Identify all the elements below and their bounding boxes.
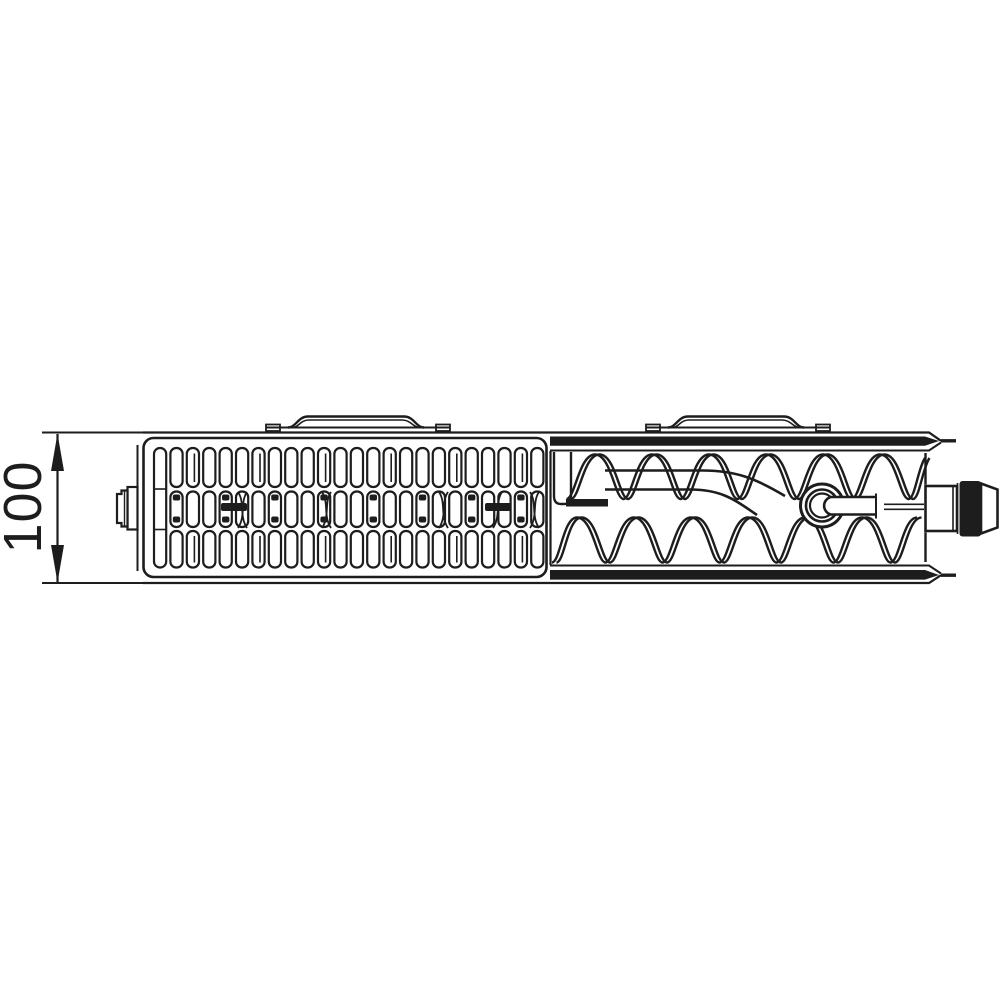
grille-slot — [367, 448, 379, 487]
grille-section — [144, 438, 547, 577]
valve-thread-block — [960, 481, 982, 537]
bracket-hump-outer — [668, 417, 804, 428]
bottom-panel-section-band — [550, 570, 939, 580]
grille-slot — [468, 495, 475, 501]
radiator-top-view-diagram: 100 — [0, 0, 1000, 1000]
grille-slot — [351, 492, 363, 528]
grille-slot — [334, 448, 346, 487]
grille-slot — [466, 448, 478, 487]
grille-slot — [220, 448, 232, 487]
grille-slot — [531, 448, 543, 487]
grille-slot — [517, 495, 524, 501]
grille-slot — [203, 492, 215, 528]
water-channel — [554, 452, 571, 504]
plug-collar — [128, 487, 138, 530]
grille-slot — [351, 531, 363, 568]
grille-slot — [285, 448, 297, 487]
grille-fin-bridge — [485, 503, 511, 511]
grille-slot — [236, 448, 248, 487]
grille-slot — [170, 448, 182, 487]
grille-slot — [220, 531, 232, 568]
wall-bracket-right — [646, 417, 830, 432]
grille-slot — [449, 492, 461, 528]
wall-bracket-left — [266, 417, 450, 432]
grille-slot — [203, 448, 215, 487]
radiator-technical-drawing-page: 100 — [0, 0, 1000, 1000]
valve-spindle-housing — [824, 497, 876, 515]
grille-slot — [433, 531, 445, 568]
grille-slot — [302, 531, 314, 568]
grille-slot — [302, 492, 314, 528]
grille-slot — [334, 531, 346, 568]
cutaway-section — [550, 437, 998, 580]
grille-slot — [187, 492, 199, 528]
grille-slot — [302, 448, 314, 487]
grille-slot — [517, 517, 524, 523]
grille-slot — [236, 531, 248, 568]
plug-knob — [117, 491, 128, 527]
grille-slot — [252, 531, 264, 568]
grille-slot — [400, 531, 412, 568]
grille-slot — [173, 517, 180, 523]
grille-slot — [370, 517, 377, 523]
grille-slot — [222, 495, 229, 501]
grille-slot — [400, 492, 412, 528]
grille-slot — [419, 517, 426, 523]
grille-slot — [252, 492, 264, 528]
grille-slot — [433, 448, 445, 487]
bracket-hump-inner — [672, 420, 800, 428]
grille-slot — [449, 448, 461, 487]
grille-slot — [203, 531, 215, 568]
grille-slot — [466, 531, 478, 568]
grille-slot — [498, 531, 510, 568]
grille-slot — [498, 448, 510, 487]
grille-fin-bridge — [221, 503, 247, 511]
grille-slot — [531, 531, 543, 568]
grille-slot — [367, 531, 379, 568]
grille-slot — [515, 448, 527, 487]
grille-slot — [416, 448, 428, 487]
grille-slot — [384, 531, 396, 568]
grille-slot — [400, 448, 412, 487]
bracket-hump-outer — [288, 417, 424, 428]
grille-slot — [419, 495, 426, 501]
grille-slot — [370, 495, 377, 501]
valve-connection — [926, 481, 998, 537]
grille-slot — [170, 531, 182, 568]
grille-slot — [384, 492, 396, 528]
channel-ledge — [566, 499, 608, 507]
grille-slot — [173, 495, 180, 501]
grille-slot — [187, 531, 199, 568]
grille-slot — [482, 531, 494, 568]
grille-slot — [334, 492, 346, 528]
grille-slot — [482, 448, 494, 487]
grille-slot — [515, 531, 527, 568]
grille-slot — [269, 531, 281, 568]
grille-slot — [384, 448, 396, 487]
grille-slot — [318, 531, 330, 568]
left-end-plug — [117, 445, 138, 571]
grille-slot — [187, 448, 199, 487]
grille-slot — [468, 517, 475, 523]
valve-spindle-stem — [884, 504, 924, 509]
grille-slot — [285, 531, 297, 568]
grille-slot — [269, 448, 281, 487]
bracket-hump-inner — [292, 420, 420, 428]
grille-slot — [416, 531, 428, 568]
grille-slot — [318, 448, 330, 487]
convector-fins-lower — [552, 518, 922, 563]
grille-slot — [285, 492, 297, 528]
grille-slot — [222, 517, 229, 523]
grille-slot — [449, 531, 461, 568]
grille-slot — [351, 448, 363, 487]
grille-slot — [271, 495, 278, 501]
grille-slot — [154, 448, 166, 568]
dimension-label: 100 — [0, 460, 53, 553]
grille-slot — [271, 517, 278, 523]
valve-cap — [981, 484, 998, 534]
grille-slot — [252, 448, 264, 487]
top-panel-section-band — [550, 437, 939, 446]
